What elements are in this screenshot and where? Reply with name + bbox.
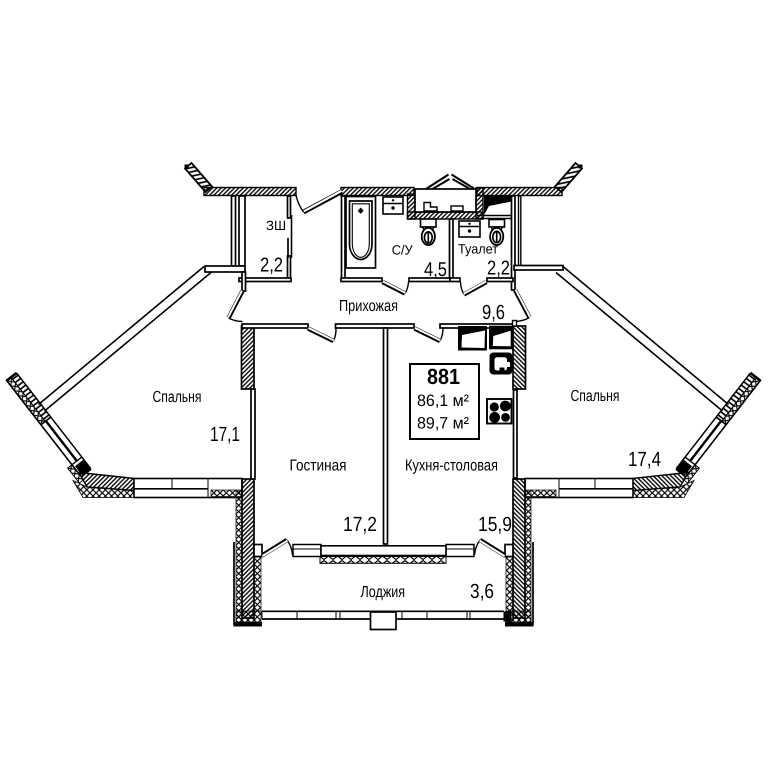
svg-text:9,6: 9,6 (482, 301, 505, 324)
svg-text:Прихожая: Прихожая (339, 298, 398, 315)
svg-text:4,5: 4,5 (424, 259, 447, 281)
svg-text:3,6: 3,6 (470, 580, 494, 603)
svg-text:Лоджия: Лоджия (361, 584, 406, 601)
svg-text:Спальня: Спальня (571, 388, 620, 405)
svg-text:Гостиная: Гостиная (290, 458, 347, 475)
svg-text:881: 881 (427, 364, 460, 389)
svg-text:Туалет: Туалет (458, 242, 498, 257)
svg-text:ЗШ: ЗШ (266, 218, 286, 233)
svg-text:17,1: 17,1 (210, 423, 240, 446)
svg-text:86,1 м²: 86,1 м² (417, 392, 469, 410)
svg-text:2,2: 2,2 (260, 255, 283, 277)
svg-text:С/У: С/У (392, 243, 413, 258)
svg-text:17,4: 17,4 (628, 448, 661, 471)
svg-text:17,2: 17,2 (343, 513, 377, 536)
svg-text:Кухня-столовая: Кухня-столовая (405, 458, 498, 475)
svg-text:89,7 м²: 89,7 м² (417, 415, 469, 433)
svg-text:2,2: 2,2 (487, 258, 510, 280)
svg-text:15,9: 15,9 (478, 513, 512, 536)
svg-text:Спальня: Спальня (153, 389, 202, 406)
